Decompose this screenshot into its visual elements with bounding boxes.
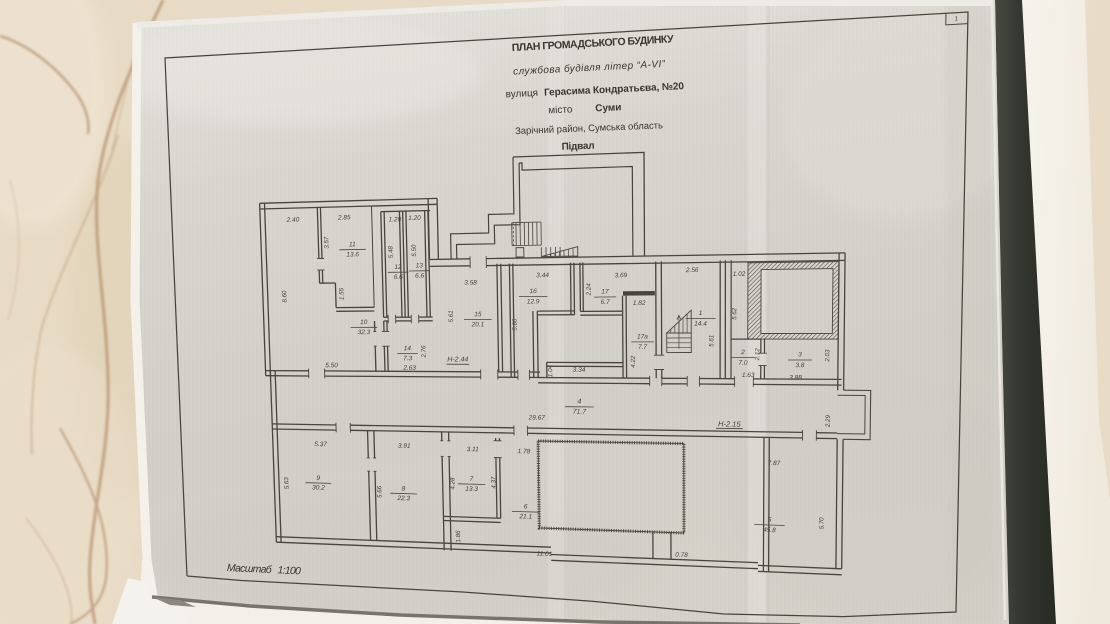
svg-text:20.1: 20.1 bbox=[471, 321, 485, 328]
svg-text:3.11: 3.11 bbox=[467, 446, 480, 453]
svg-text:3.8: 3.8 bbox=[795, 362, 804, 369]
svg-text:3: 3 bbox=[798, 351, 802, 358]
svg-text:7.3: 7.3 bbox=[403, 355, 412, 362]
svg-text:6.7: 6.7 bbox=[601, 299, 610, 306]
svg-text:13: 13 bbox=[416, 262, 424, 269]
svg-text:5.63: 5.63 bbox=[283, 477, 290, 490]
svg-text:13.3: 13.3 bbox=[465, 486, 478, 493]
svg-text:8: 8 bbox=[402, 485, 406, 492]
svg-text:4.22: 4.22 bbox=[630, 355, 637, 368]
svg-text:1.20: 1.20 bbox=[388, 216, 401, 223]
svg-text:3.57: 3.57 bbox=[323, 236, 330, 249]
svg-text:2.56: 2.56 bbox=[685, 267, 699, 274]
svg-text:5.50: 5.50 bbox=[325, 362, 338, 369]
svg-text:1: 1 bbox=[954, 16, 958, 22]
svg-text:29.67: 29.67 bbox=[528, 414, 546, 421]
svg-text:2.85: 2.85 bbox=[337, 214, 351, 221]
svg-text:3.44: 3.44 bbox=[536, 272, 549, 279]
svg-text:5: 5 bbox=[768, 517, 772, 524]
svg-text:6: 6 bbox=[524, 504, 528, 511]
svg-text:5.61: 5.61 bbox=[708, 335, 715, 347]
svg-text:9: 9 bbox=[316, 475, 320, 482]
svg-text:Н-2.44: Н-2.44 bbox=[447, 356, 468, 363]
svg-text:5.66: 5.66 bbox=[376, 485, 383, 498]
svg-text:3.69: 3.69 bbox=[615, 272, 628, 279]
svg-text:2.29: 2.29 bbox=[825, 414, 832, 428]
svg-text:2: 2 bbox=[740, 349, 745, 356]
svg-text:4.37: 4.37 bbox=[490, 476, 497, 489]
svg-text:11: 11 bbox=[349, 241, 356, 248]
svg-text:8.60: 8.60 bbox=[281, 290, 288, 303]
svg-text:5.50: 5.50 bbox=[411, 244, 418, 257]
svg-text:1.78: 1.78 bbox=[518, 448, 531, 455]
svg-text:12.9: 12.9 bbox=[527, 298, 540, 305]
svg-text:5.70: 5.70 bbox=[818, 517, 825, 530]
svg-text:14.4: 14.4 bbox=[694, 321, 707, 328]
svg-text:17а: 17а bbox=[637, 333, 648, 340]
svg-text:5.60: 5.60 bbox=[512, 318, 519, 331]
svg-text:2.40: 2.40 bbox=[286, 217, 300, 224]
svg-text:3.91: 3.91 bbox=[398, 443, 411, 450]
svg-text:4: 4 bbox=[577, 398, 581, 405]
svg-text:1.02: 1.02 bbox=[733, 271, 746, 278]
svg-text:місто: місто bbox=[548, 104, 573, 116]
svg-text:0.78: 0.78 bbox=[675, 552, 688, 559]
svg-text:14: 14 bbox=[404, 345, 412, 352]
svg-text:4.28: 4.28 bbox=[449, 477, 456, 490]
svg-text:3.58: 3.58 bbox=[464, 280, 477, 287]
svg-text:1.04: 1.04 bbox=[547, 364, 554, 377]
svg-text:71.7: 71.7 bbox=[573, 409, 588, 416]
svg-text:15: 15 bbox=[474, 311, 482, 318]
svg-text:Н-2.15: Н-2.15 bbox=[718, 419, 741, 428]
svg-text:3.88: 3.88 bbox=[789, 374, 802, 381]
svg-text:1.86: 1.86 bbox=[455, 530, 462, 543]
svg-text:7.7: 7.7 bbox=[638, 344, 647, 351]
svg-text:2.24: 2.24 bbox=[586, 283, 593, 297]
svg-text:7.0: 7.0 bbox=[738, 360, 747, 367]
svg-text:1.82: 1.82 bbox=[633, 300, 646, 307]
svg-text:5.62: 5.62 bbox=[731, 307, 738, 320]
svg-text:3.34: 3.34 bbox=[573, 367, 586, 374]
svg-text:2.12: 2.12 bbox=[754, 348, 761, 362]
svg-text:10: 10 bbox=[360, 319, 368, 326]
svg-text:16: 16 bbox=[529, 288, 537, 295]
svg-text:вулиця: вулиця bbox=[505, 88, 538, 100]
svg-text:2.63: 2.63 bbox=[402, 365, 416, 372]
svg-text:1.55: 1.55 bbox=[338, 287, 345, 300]
svg-text:17: 17 bbox=[601, 288, 609, 295]
svg-text:6.6: 6.6 bbox=[394, 274, 404, 281]
svg-text:32.3: 32.3 bbox=[358, 329, 371, 336]
svg-text:2.76: 2.76 bbox=[420, 345, 427, 359]
svg-text:5.37: 5.37 bbox=[314, 441, 327, 448]
svg-text:12: 12 bbox=[394, 264, 402, 271]
svg-text:Підвал: Підвал bbox=[561, 141, 594, 153]
svg-text:45.8: 45.8 bbox=[763, 527, 776, 534]
svg-text:22.3: 22.3 bbox=[396, 495, 410, 502]
svg-text:7: 7 bbox=[469, 476, 473, 483]
svg-text:2.03: 2.03 bbox=[824, 349, 831, 363]
svg-text:5.48: 5.48 bbox=[387, 245, 394, 258]
svg-text:7.87: 7.87 bbox=[767, 460, 780, 467]
svg-text:Суми: Суми bbox=[595, 102, 622, 114]
svg-text:13.6: 13.6 bbox=[346, 251, 359, 258]
svg-text:1.20: 1.20 bbox=[408, 215, 421, 222]
svg-text:30.2: 30.2 bbox=[312, 484, 325, 491]
svg-text:11.01: 11.01 bbox=[536, 550, 552, 558]
svg-text:5.61: 5.61 bbox=[448, 310, 455, 322]
svg-text:21.1: 21.1 bbox=[518, 513, 532, 520]
svg-text:1.63: 1.63 bbox=[742, 372, 755, 379]
svg-text:1: 1 bbox=[699, 310, 703, 317]
svg-text:6.6: 6.6 bbox=[415, 273, 425, 280]
